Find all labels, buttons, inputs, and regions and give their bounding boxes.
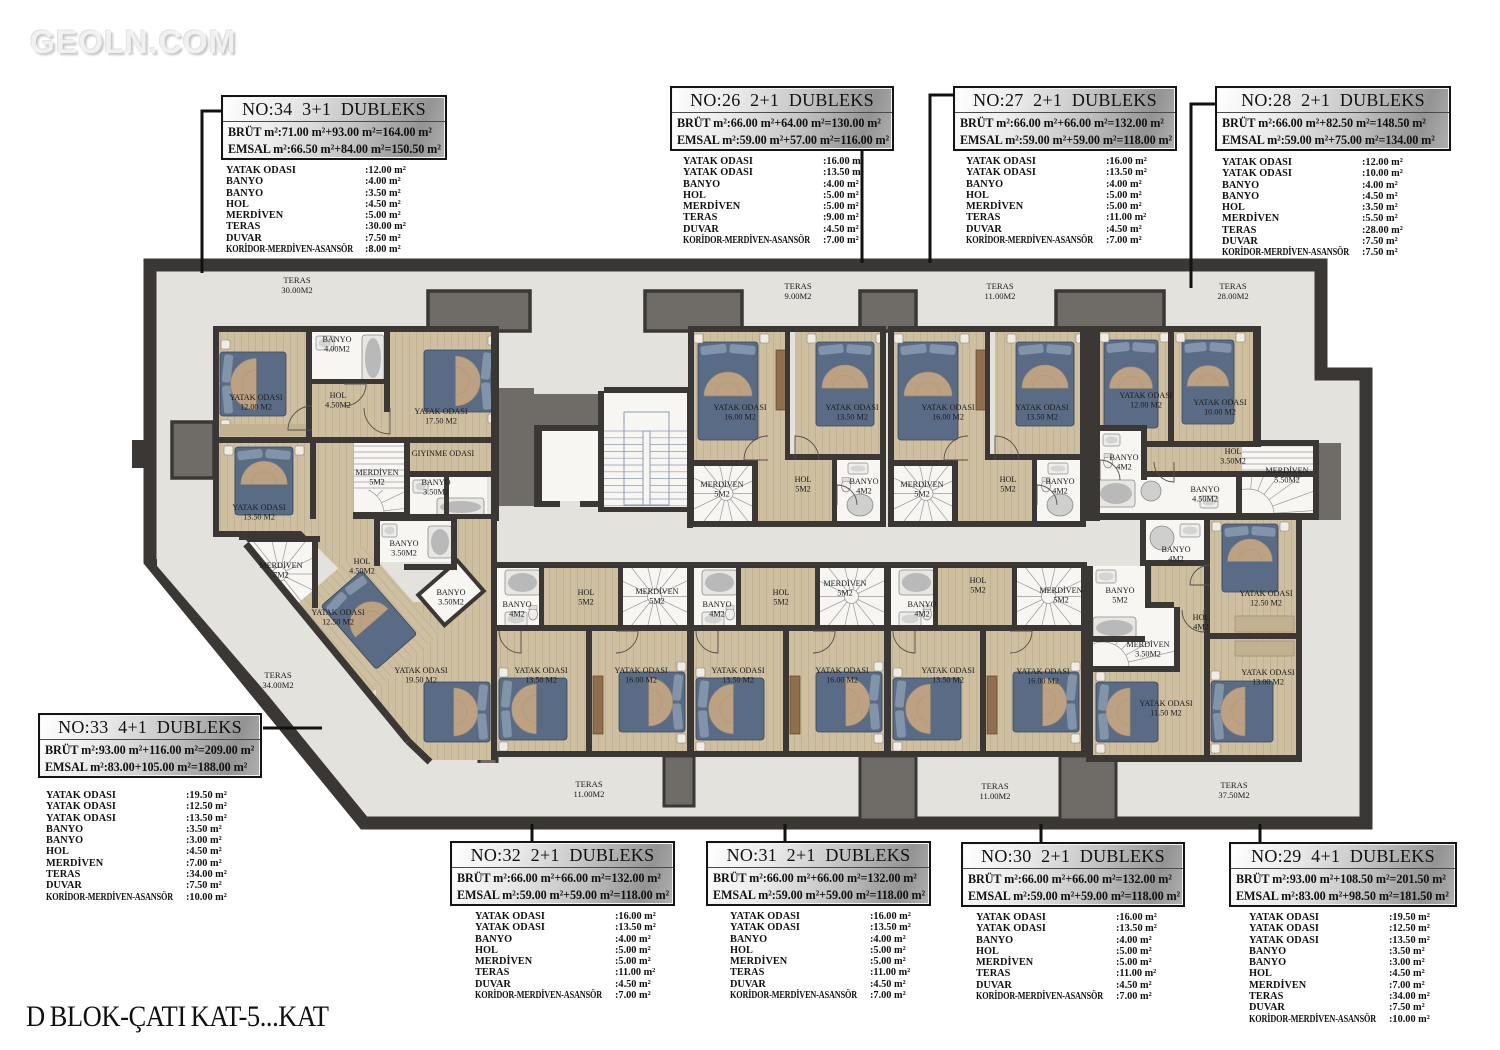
svg-text:16.00 M2: 16.00 M2 [724,412,756,421]
svg-text:12.50 M2: 12.50 M2 [322,617,354,626]
svg-text:3.50M2: 3.50M2 [1220,456,1246,465]
svg-text:MERDİVEN: MERDİVEN [823,579,866,588]
svg-text:13.50 M2: 13.50 M2 [243,512,275,521]
svg-text:YATAK ODASI: YATAK ODASI [514,666,568,675]
svg-text:YATAK ODASI: YATAK ODASI [1139,699,1193,708]
svg-text:BANYO: BANYO [1190,485,1219,494]
svg-text:13.50 M2: 13.50 M2 [836,412,868,421]
svg-text:MERDİVEN: MERDİVEN [700,480,743,489]
svg-text:5M2: 5M2 [773,597,788,606]
svg-text:13.50 M2: 13.50 M2 [525,675,557,684]
svg-text:YATAK ODASI: YATAK ODASI [815,666,869,675]
svg-text:MERDİVEN: MERDİVEN [1126,640,1169,649]
svg-text:4M2: 4M2 [509,609,524,618]
svg-text:YATAK ODASI: YATAK ODASI [232,503,286,512]
svg-text:BANYO: BANYO [1161,545,1190,554]
svg-text:4M2: 4M2 [1168,554,1183,563]
svg-text:13.50 M2: 13.50 M2 [932,675,964,684]
svg-text:BANYO: BANYO [1045,477,1074,486]
svg-text:YATAK ODASI: YATAK ODASI [1016,667,1070,676]
svg-text:YATAK ODASI: YATAK ODASI [414,407,468,416]
svg-text:TERAS: TERAS [575,779,602,789]
svg-text:YATAK ODASI: YATAK ODASI [921,666,975,675]
svg-text:BANYO: BANYO [702,600,731,609]
svg-text:HOL: HOL [795,475,812,484]
svg-text:TERAS: TERAS [264,670,291,680]
svg-text:BANYO: BANYO [322,335,351,344]
svg-text:HOL: HOL [354,557,371,566]
svg-text:4M2: 4M2 [914,609,929,618]
svg-text:7M2: 7M2 [273,570,288,579]
svg-text:YATAK ODASI: YATAK ODASI [1119,391,1173,400]
svg-text:BANYO: BANYO [421,478,450,487]
svg-text:MERDİVEN: MERDİVEN [1039,586,1082,595]
svg-text:4M2: 4M2 [856,486,871,495]
svg-text:10.00 M2: 10.00 M2 [1204,407,1236,416]
svg-text:HOL: HOL [1225,447,1242,456]
svg-text:12.00 M2: 12.00 M2 [240,402,272,411]
svg-text:16.00 M2: 16.00 M2 [625,675,657,684]
svg-text:19.50 M2: 19.50 M2 [405,675,437,684]
svg-text:13.50 M2: 13.50 M2 [722,675,754,684]
svg-text:BANYO: BANYO [436,588,465,597]
svg-text:BANYO: BANYO [849,477,878,486]
svg-text:5M2: 5M2 [1000,484,1015,493]
svg-text:YATAK ODASI: YATAK ODASI [229,393,283,402]
svg-text:TERAS: TERAS [981,781,1008,791]
svg-text:28.00M2: 28.00M2 [1217,291,1248,301]
svg-text:YATAK ODASI: YATAK ODASI [711,666,765,675]
svg-text:4M2: 4M2 [709,609,724,618]
svg-text:YATAK ODASI: YATAK ODASI [713,403,767,412]
svg-text:TERAS: TERAS [283,275,310,285]
svg-text:BANYO: BANYO [502,600,531,609]
svg-text:11.00M2: 11.00M2 [574,789,605,799]
svg-text:3.50M2: 3.50M2 [1135,649,1161,658]
svg-text:YATAK ODASI: YATAK ODASI [1239,589,1293,598]
svg-text:12.00 M2: 12.00 M2 [1130,400,1162,409]
svg-text:HOL: HOL [1000,475,1017,484]
svg-text:11.00M2: 11.00M2 [980,791,1011,801]
svg-text:5M2: 5M2 [795,484,810,493]
svg-text:5M2: 5M2 [649,596,664,605]
svg-text:HOL: HOL [773,588,790,597]
svg-text:11.00M2: 11.00M2 [985,291,1016,301]
svg-text:BANYO: BANYO [1109,453,1138,462]
svg-text:4M2: 4M2 [1116,462,1131,471]
svg-text:YATAK ODASI: YATAK ODASI [1241,668,1295,677]
svg-text:YATAK ODASI: YATAK ODASI [311,608,365,617]
svg-text:5M2: 5M2 [1112,595,1127,604]
svg-text:HOL: HOL [1193,613,1210,622]
svg-text:MERDİVEN: MERDİVEN [355,468,398,477]
svg-text:5M2: 5M2 [970,585,985,594]
svg-text:5M2: 5M2 [369,477,384,486]
svg-text:3.50M2: 3.50M2 [391,548,417,557]
svg-text:YATAK ODASI: YATAK ODASI [1193,398,1247,407]
svg-text:13.00 M2: 13.00 M2 [1252,677,1284,686]
svg-text:37.50M2: 37.50M2 [1218,790,1249,800]
svg-text:YATAK ODASI: YATAK ODASI [921,403,975,412]
svg-text:5.50M2: 5.50M2 [1274,475,1300,484]
svg-text:5M2: 5M2 [1053,595,1068,604]
svg-text:5M2: 5M2 [914,489,929,498]
svg-text:TERAS: TERAS [1220,780,1247,790]
svg-text:13.50 M2: 13.50 M2 [1026,412,1058,421]
svg-text:HOL: HOL [578,588,595,597]
svg-text:MERDİVEN: MERDİVEN [259,561,302,570]
svg-text:16.00 M2: 16.00 M2 [932,412,964,421]
svg-text:GIYINME ODASI: GIYINME ODASI [412,449,475,458]
svg-text:MERDİVEN: MERDİVEN [1265,466,1308,475]
svg-text:12.50 M2: 12.50 M2 [1250,598,1282,607]
svg-text:4M2: 4M2 [1193,622,1208,631]
svg-text:5M2: 5M2 [837,588,852,597]
svg-text:11.50 M2: 11.50 M2 [1150,708,1182,717]
svg-text:5M2: 5M2 [578,597,593,606]
svg-text:5M2: 5M2 [714,489,729,498]
svg-text:YATAK ODASI: YATAK ODASI [394,666,448,675]
svg-text:3.50M2: 3.50M2 [438,597,464,606]
svg-text:30.00M2: 30.00M2 [281,285,312,295]
svg-text:3.50M2: 3.50M2 [423,487,449,496]
svg-text:34.00M2: 34.00M2 [262,680,293,690]
svg-text:TERAS: TERAS [1219,281,1246,291]
svg-text:YATAK ODASI: YATAK ODASI [614,666,668,675]
svg-text:4M2: 4M2 [1052,486,1067,495]
svg-text:4.50M2: 4.50M2 [349,566,375,575]
svg-text:4.50M2: 4.50M2 [325,400,351,409]
svg-text:4.50M2: 4.50M2 [1192,494,1218,503]
svg-text:HOL: HOL [970,576,987,585]
svg-text:BANYO: BANYO [1105,586,1134,595]
svg-text:YATAK ODASI: YATAK ODASI [825,403,879,412]
svg-text:9.00M2: 9.00M2 [785,291,812,301]
svg-text:16.00 M2: 16.00 M2 [1027,676,1059,685]
svg-text:4.00M2: 4.00M2 [324,344,350,353]
svg-text:TERAS: TERAS [784,281,811,291]
svg-text:16.00 M2: 16.00 M2 [826,675,858,684]
svg-text:HOL: HOL [330,391,347,400]
svg-text:BANYO: BANYO [907,600,936,609]
svg-text:TERAS: TERAS [986,281,1013,291]
svg-text:YATAK ODASI: YATAK ODASI [1015,403,1069,412]
svg-text:MERDİVEN: MERDİVEN [635,587,678,596]
svg-text:BANYO: BANYO [389,539,418,548]
svg-text:17.50 M2: 17.50 M2 [425,416,457,425]
svg-text:MERDİVEN: MERDİVEN [900,480,943,489]
